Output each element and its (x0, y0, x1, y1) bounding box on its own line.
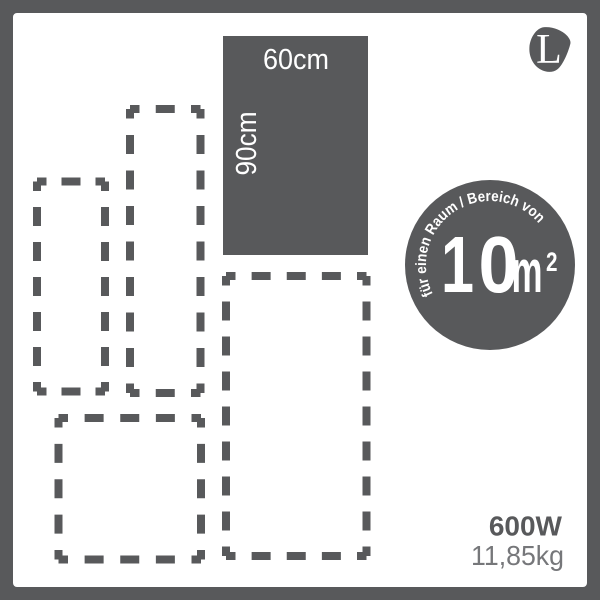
svg-text:600W: 600W (489, 510, 563, 541)
svg-text:11,85kg: 11,85kg (471, 540, 564, 571)
svg-text:2: 2 (546, 247, 558, 277)
svg-text:L: L (536, 27, 562, 73)
svg-text:1: 1 (441, 220, 474, 309)
svg-text:m: m (512, 238, 543, 305)
svg-text:90cm: 90cm (231, 112, 263, 176)
svg-text:60cm: 60cm (263, 44, 329, 76)
